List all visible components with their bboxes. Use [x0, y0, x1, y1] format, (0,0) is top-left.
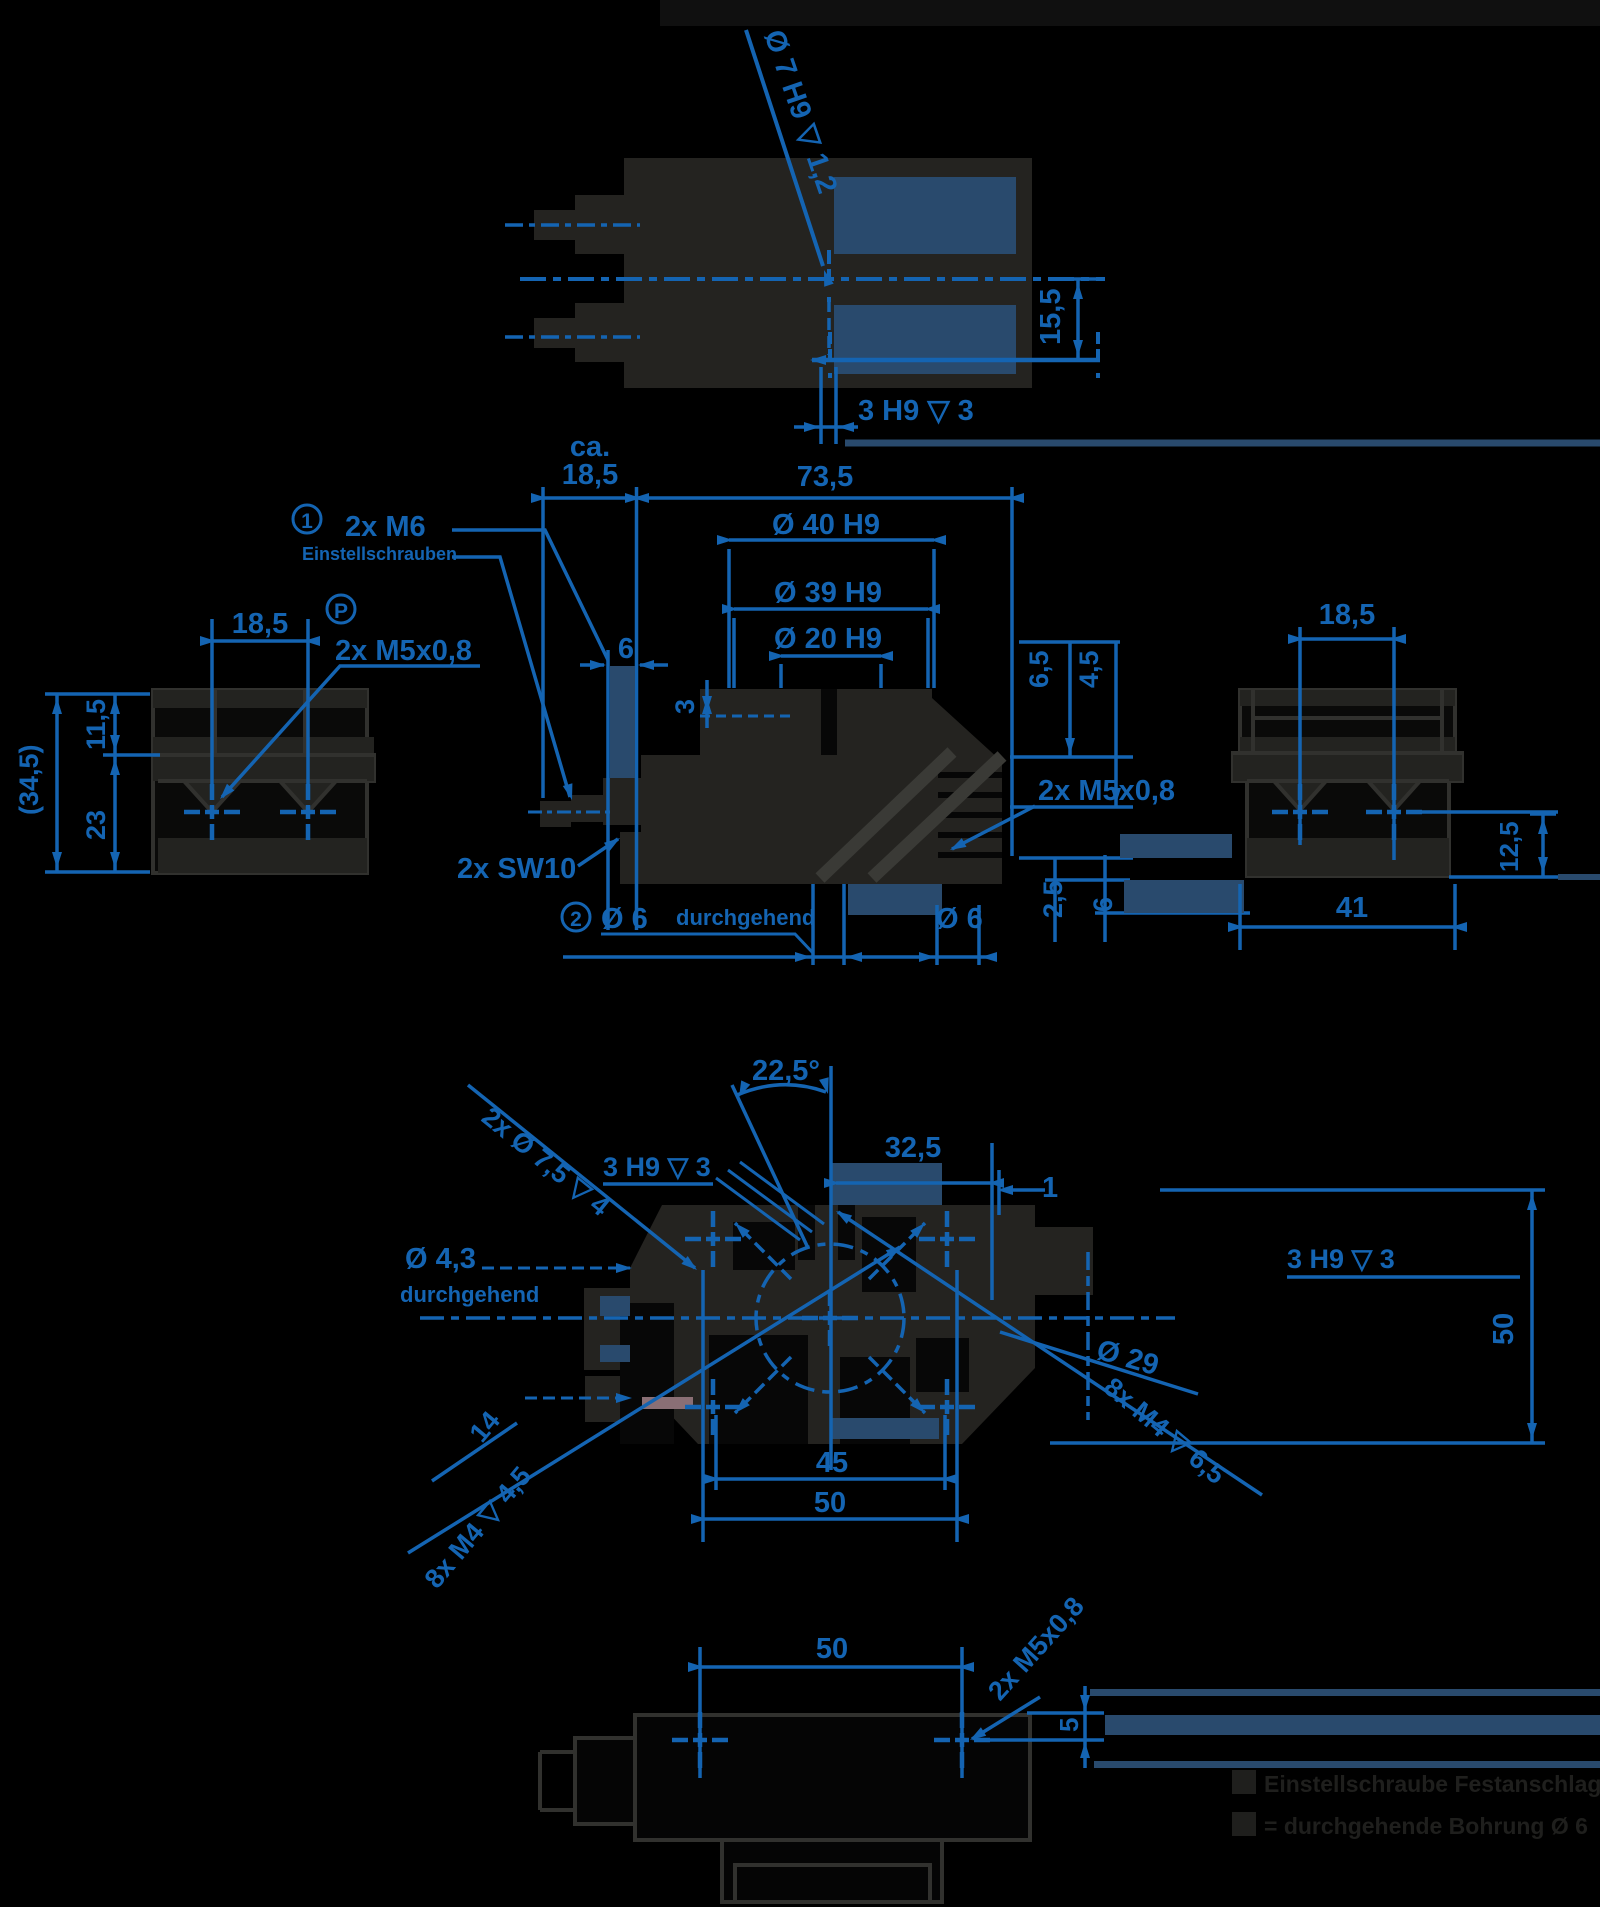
svg-text:50: 50: [814, 1487, 846, 1519]
svg-text:4,5: 4,5: [1074, 650, 1104, 688]
svg-text:= durchgehende Bohrung Ø 6: = durchgehende Bohrung Ø 6: [1264, 1813, 1588, 1839]
svg-text:15,5: 15,5: [1035, 289, 1067, 345]
svg-text:Ø 40 H9: Ø 40 H9: [772, 509, 880, 541]
svg-text:2x M6: 2x M6: [345, 511, 426, 543]
svg-text:32,5: 32,5: [885, 1132, 941, 1164]
svg-text:11,5: 11,5: [81, 699, 111, 750]
svg-text:1: 1: [301, 510, 313, 533]
svg-text:18,5: 18,5: [1319, 599, 1375, 631]
svg-text:50: 50: [816, 1633, 848, 1665]
svg-text:durchgehend: durchgehend: [400, 1282, 539, 1307]
svg-text:Ø 6: Ø 6: [936, 903, 983, 935]
svg-text:3 H9 ▽ 3: 3 H9 ▽ 3: [603, 1152, 711, 1182]
svg-text:41: 41: [1336, 892, 1368, 924]
svg-text:Ø 20 H9: Ø 20 H9: [774, 623, 882, 655]
svg-text:12,5: 12,5: [1494, 821, 1524, 872]
svg-text:5: 5: [1054, 1718, 1084, 1732]
svg-text:3 H9 ▽ 3: 3 H9 ▽ 3: [858, 395, 974, 427]
svg-text:1: 1: [1042, 1172, 1058, 1204]
svg-text:18,5: 18,5: [232, 608, 288, 640]
svg-text:Ø 39 H9: Ø 39 H9: [774, 577, 882, 609]
svg-text:Ø 4,3: Ø 4,3: [405, 1243, 476, 1275]
svg-text:18,5: 18,5: [562, 459, 618, 491]
svg-text:2x M5x0,8: 2x M5x0,8: [335, 635, 472, 667]
svg-text:3: 3: [670, 699, 700, 714]
svg-text:6: 6: [1088, 897, 1118, 912]
svg-text:73,5: 73,5: [797, 461, 853, 493]
svg-text:50: 50: [1488, 1313, 1520, 1345]
svg-text:2x SW10: 2x SW10: [457, 853, 576, 885]
svg-text:durchgehend: durchgehend: [676, 905, 815, 930]
svg-text:(34,5): (34,5): [14, 744, 44, 815]
svg-text:Einstellschrauben: Einstellschrauben: [302, 544, 457, 564]
svg-text:Ø 6: Ø 6: [601, 903, 648, 935]
svg-text:P: P: [334, 600, 348, 623]
svg-text:22,5°: 22,5°: [752, 1055, 820, 1087]
svg-text:45: 45: [816, 1447, 848, 1479]
svg-text:2x M5x0,8: 2x M5x0,8: [1038, 775, 1175, 807]
svg-text:23: 23: [81, 810, 111, 840]
svg-text:3 H9 ▽ 3: 3 H9 ▽ 3: [1287, 1244, 1395, 1274]
svg-text:2,5: 2,5: [1038, 880, 1068, 918]
svg-text:2: 2: [570, 908, 582, 931]
svg-text:Einstellschraube Festanschlag: Einstellschraube Festanschlag: [1264, 1771, 1600, 1797]
svg-text:6: 6: [618, 633, 634, 665]
svg-text:6,5: 6,5: [1024, 650, 1054, 688]
